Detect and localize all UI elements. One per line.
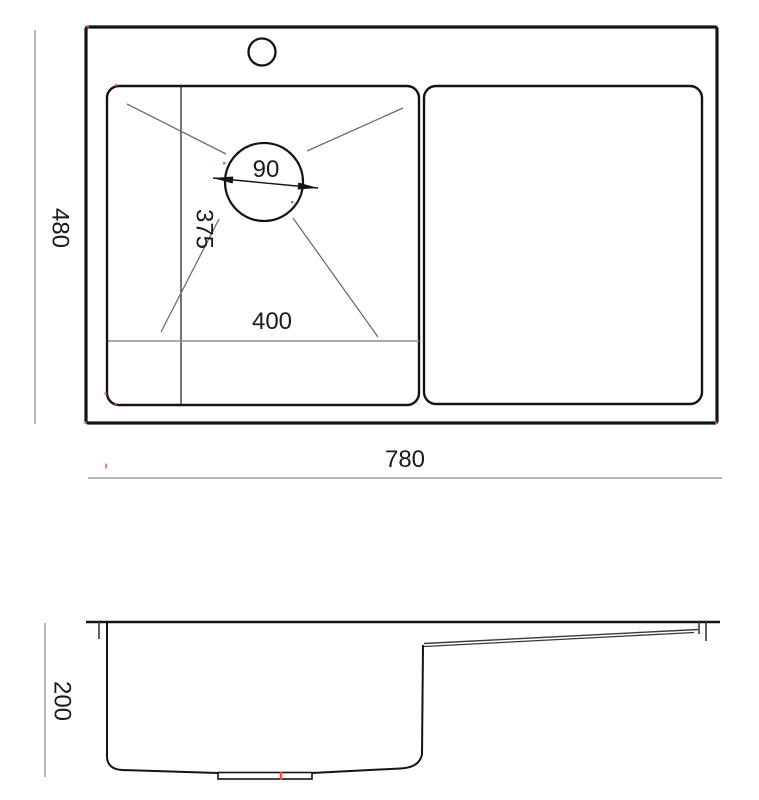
snap-marker bbox=[291, 201, 293, 203]
label-overall-width: 780 bbox=[385, 446, 425, 473]
drain-diameter-arrow-right-icon bbox=[298, 183, 318, 190]
snap-marker bbox=[105, 464, 107, 469]
snap-marker bbox=[87, 26, 89, 28]
drainboard-outline bbox=[424, 86, 702, 404]
cad-snap-markers bbox=[85, 26, 718, 469]
bowl-slope-line-top-left bbox=[127, 104, 226, 154]
drain-diameter-arrow-left-icon bbox=[213, 177, 233, 184]
snap-marker bbox=[115, 84, 117, 86]
drawing-canvas: 90 400 375 480 780 bbox=[0, 0, 759, 800]
drain-flange bbox=[218, 773, 312, 780]
snap-marker bbox=[223, 162, 225, 164]
bowl-outline bbox=[107, 86, 419, 405]
label-bowl-inner-depth: 375 bbox=[191, 209, 218, 249]
label-drain-diameter: 90 bbox=[253, 156, 280, 183]
faucet-hole-circle bbox=[249, 39, 276, 66]
side-view: 200 bbox=[45, 622, 720, 780]
side-drainboard-top-line bbox=[424, 630, 698, 644]
overall-dimensions: 480 780 bbox=[35, 30, 722, 478]
sink-technical-drawing: 90 400 375 480 780 bbox=[0, 0, 759, 800]
side-bowl-profile bbox=[107, 623, 423, 773]
label-sink-height: 200 bbox=[49, 681, 76, 721]
top-view: 90 400 375 bbox=[86, 27, 717, 423]
snap-marker bbox=[115, 403, 117, 405]
snap-marker bbox=[715, 422, 717, 424]
snap-marker bbox=[105, 393, 107, 395]
bowl-slope-line-bottom-right bbox=[293, 218, 378, 337]
side-drainboard-bottom-line bbox=[424, 633, 694, 647]
bowl-slope-line-top-right bbox=[307, 108, 403, 151]
label-overall-depth: 480 bbox=[47, 208, 74, 248]
snap-marker bbox=[85, 422, 87, 424]
label-bowl-inner-width: 400 bbox=[252, 308, 292, 335]
